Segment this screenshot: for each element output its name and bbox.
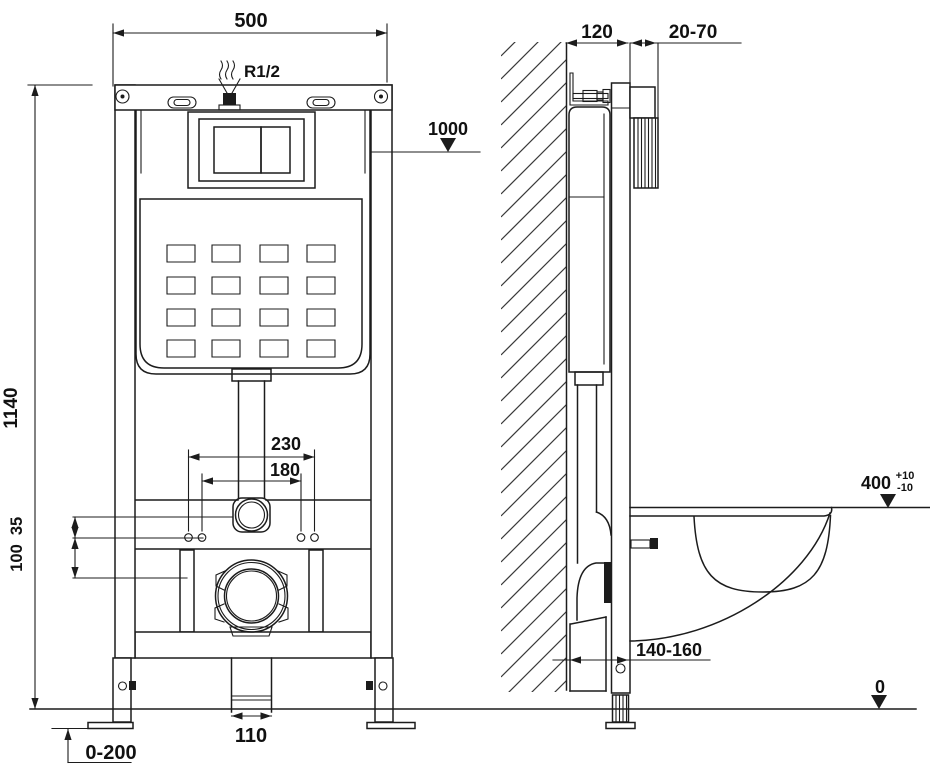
- flush-button-small: [261, 127, 290, 173]
- side-view: [569, 73, 930, 729]
- bowl-mounting-rod: [631, 538, 658, 549]
- dim-0-200-label: 0-200: [85, 742, 136, 764]
- blueprint-canvas: 500 R1/2 1000 1140 230 180: [0, 0, 930, 780]
- cross-members: [135, 500, 371, 549]
- flush-button-large: [214, 127, 261, 173]
- dim-230-label: 230: [271, 434, 301, 454]
- dim-400-tol-minus-label: -10: [897, 482, 913, 494]
- tank-front-panel: [140, 199, 362, 368]
- dim-110-label: 110: [235, 725, 267, 747]
- dim-100-label: 100: [8, 544, 26, 572]
- frame-top-rail: [115, 85, 392, 110]
- dimension-180: 180: [202, 460, 301, 531]
- dimension-110: 110: [232, 712, 272, 747]
- drain-pipe: [232, 658, 272, 712]
- flush-shaft-block: [630, 87, 658, 188]
- dim-140-160-label: 140-160: [636, 640, 702, 660]
- front-view: [88, 61, 415, 729]
- dim-20-70-label: 20-70: [669, 22, 718, 43]
- dim-180-label: 180: [270, 460, 300, 480]
- frame-left-rail: [115, 85, 135, 658]
- dimension-140-160: 140-160: [553, 640, 710, 664]
- flush-plate: [188, 112, 315, 188]
- technical-drawing-page: 500 R1/2 1000 1140 230 180: [0, 0, 930, 780]
- cistern-tank: [136, 104, 370, 374]
- level-400: 400 +10 -10: [861, 470, 914, 508]
- actuator-grid: [167, 245, 335, 357]
- flush-pipe: [232, 369, 271, 498]
- dim-35-label: 35: [8, 517, 26, 535]
- frame-right-rail: [371, 85, 392, 658]
- drain-elbow: [570, 562, 611, 691]
- wall-hatching: [501, 0, 567, 746]
- side-foot-plate: [606, 723, 635, 729]
- level-1000-label: 1000: [428, 119, 468, 139]
- drain-coupling: [215, 560, 288, 636]
- water-inlet-label: R1/2: [244, 62, 280, 81]
- inlet-fitting: [233, 498, 270, 532]
- dim-1140-label: 1140: [1, 387, 22, 428]
- level-0: 0: [871, 677, 887, 709]
- dim-120-label: 120: [581, 22, 613, 43]
- dimension-120: 120: [566, 22, 630, 83]
- dimension-1140: 1140: [1, 85, 92, 709]
- side-cistern: [569, 107, 610, 385]
- toilet-bowl-profile: [630, 508, 930, 642]
- support-legs: [113, 658, 393, 722]
- level-0-label: 0: [875, 677, 885, 697]
- wall-bracket: [570, 73, 610, 105]
- side-flush-pipe: [578, 385, 612, 563]
- dim-400-label: 400: [861, 473, 891, 493]
- mounting-holes: [185, 534, 319, 542]
- dim-500-label: 500: [234, 10, 267, 32]
- dimension-0-200: 0-200: [52, 729, 137, 765]
- side-frame-rail: [612, 83, 631, 693]
- dim-400-tol-plus-label: +10: [896, 470, 915, 482]
